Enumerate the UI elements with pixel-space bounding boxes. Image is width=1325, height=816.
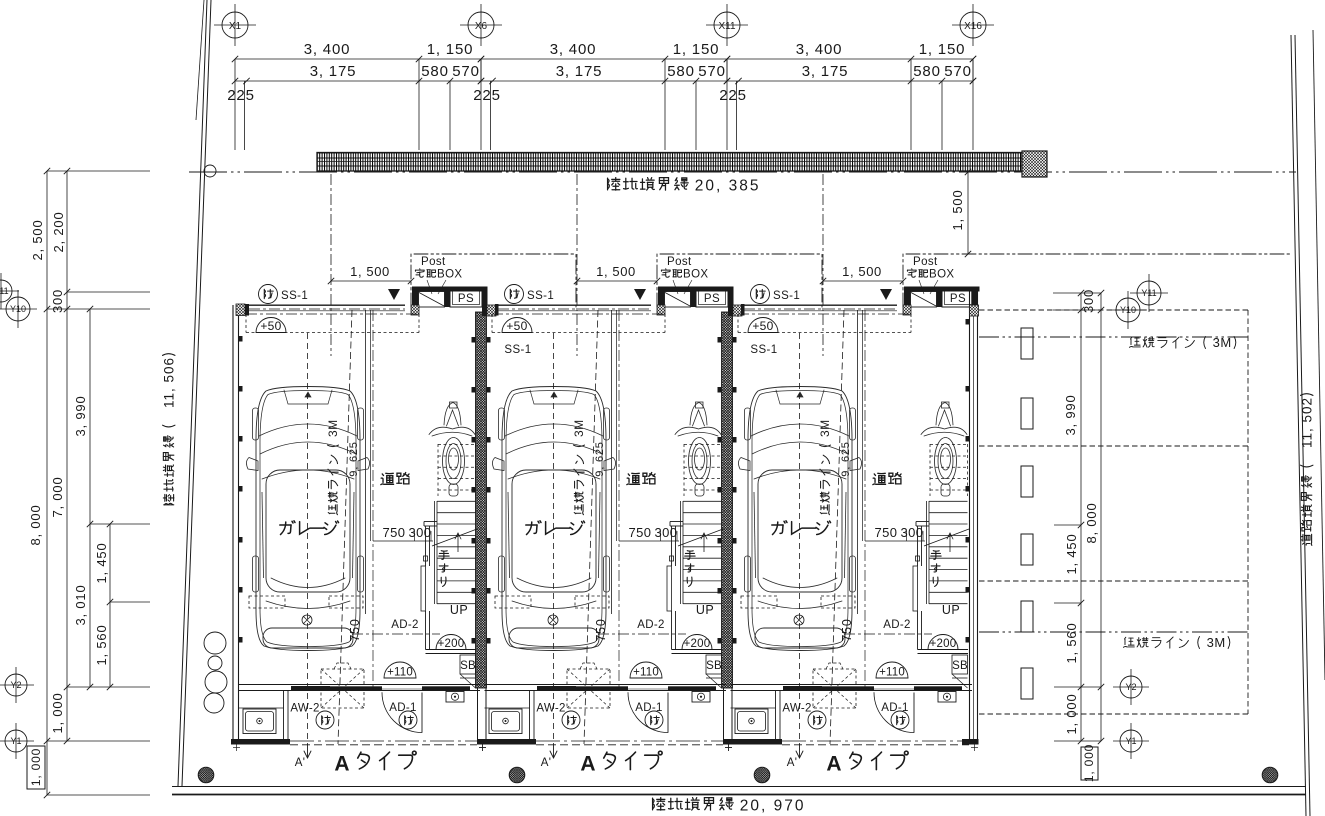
svg-text:1, 000: 1, 000	[29, 748, 43, 786]
svg-text:SS-1: SS-1	[527, 290, 554, 302]
svg-text:11, 506: 11, 506	[162, 357, 177, 408]
svg-text:SB: SB	[952, 660, 968, 672]
svg-text:1, 500: 1, 500	[596, 264, 636, 279]
svg-text:+50: +50	[752, 319, 773, 333]
svg-text:A': A'	[295, 757, 305, 769]
svg-text:3, 990: 3, 990	[73, 396, 88, 437]
svg-text:300: 300	[1081, 289, 1096, 313]
svg-text:+50: +50	[260, 319, 281, 333]
svg-text:A: A	[580, 753, 595, 776]
svg-text:8, 000: 8, 000	[28, 505, 43, 546]
svg-text:X16: X16	[964, 21, 982, 32]
svg-text:Y1: Y1	[1125, 736, 1136, 746]
svg-text:SS-1: SS-1	[750, 344, 777, 356]
svg-text:2, 500: 2, 500	[30, 220, 45, 261]
svg-text:1, 000: 1, 000	[1082, 744, 1096, 782]
svg-text:580: 580	[421, 63, 448, 80]
svg-text:1, 500: 1, 500	[950, 190, 965, 231]
svg-text:AD-2: AD-2	[637, 619, 664, 631]
svg-text:BOX: BOX	[929, 269, 955, 281]
svg-text:3, 400: 3, 400	[796, 41, 843, 58]
svg-text:+110: +110	[879, 667, 905, 679]
svg-text:3, 400: 3, 400	[550, 41, 597, 58]
svg-text:300: 300	[50, 289, 65, 313]
svg-text:1, 560: 1, 560	[1064, 623, 1079, 664]
svg-text:Y11: Y11	[0, 286, 9, 296]
svg-text:1, 000: 1, 000	[50, 693, 65, 734]
svg-text:UP: UP	[450, 603, 468, 617]
svg-text:9, 625: 9, 625	[840, 441, 852, 476]
svg-text:1, 150: 1, 150	[919, 41, 966, 58]
svg-text:A': A'	[787, 757, 797, 769]
svg-text:X6: X6	[475, 21, 488, 32]
svg-text:580: 580	[913, 63, 940, 80]
svg-text:Post: Post	[913, 256, 938, 268]
svg-text:9, 625: 9, 625	[594, 441, 606, 476]
svg-text:1, 150: 1, 150	[673, 41, 720, 58]
svg-text:+200: +200	[438, 638, 465, 650]
svg-text:3, 175: 3, 175	[802, 63, 849, 80]
svg-text:1, 500: 1, 500	[842, 264, 882, 279]
svg-text:+200: +200	[930, 638, 957, 650]
svg-text:9, 625: 9, 625	[348, 441, 360, 476]
svg-text:1, 150: 1, 150	[427, 41, 474, 58]
svg-text:Y11: Y11	[1141, 288, 1156, 298]
svg-text:A': A'	[541, 757, 551, 769]
svg-text:Y2: Y2	[10, 680, 21, 690]
svg-text:AW-2: AW-2	[290, 703, 319, 715]
svg-text:AW-2: AW-2	[536, 703, 565, 715]
svg-text:A: A	[826, 753, 841, 776]
svg-text:570: 570	[698, 63, 725, 80]
svg-text:+50: +50	[506, 319, 527, 333]
svg-text:3M: 3M	[1213, 335, 1232, 350]
svg-text:X1: X1	[229, 21, 242, 32]
svg-text:3, 010: 3, 010	[73, 585, 88, 626]
svg-text:20, 385: 20, 385	[695, 178, 761, 195]
svg-text:SS-1: SS-1	[281, 290, 308, 302]
svg-text:300: 300	[655, 525, 678, 540]
svg-text:AD-2: AD-2	[883, 619, 910, 631]
svg-text:SB: SB	[706, 660, 722, 672]
svg-text:570: 570	[944, 63, 971, 80]
svg-text:3, 175: 3, 175	[310, 63, 357, 80]
svg-text:Y10: Y10	[10, 304, 26, 314]
svg-text:225: 225	[719, 87, 746, 104]
svg-text:Y2: Y2	[1125, 682, 1136, 692]
svg-text:750: 750	[875, 525, 898, 540]
svg-text:AD-2: AD-2	[391, 619, 418, 631]
svg-text:1, 560: 1, 560	[94, 625, 109, 666]
svg-text:750: 750	[383, 525, 406, 540]
svg-text:8, 000: 8, 000	[1084, 503, 1099, 544]
svg-text:750: 750	[594, 618, 608, 641]
svg-text:1, 450: 1, 450	[1064, 534, 1079, 575]
svg-text:750: 750	[629, 525, 652, 540]
svg-text:300: 300	[409, 525, 432, 540]
svg-text:570: 570	[452, 63, 479, 80]
svg-text:2, 200: 2, 200	[51, 212, 66, 253]
svg-text:SS-1: SS-1	[504, 344, 531, 356]
svg-text:1, 500: 1, 500	[350, 264, 390, 279]
svg-text:PS: PS	[950, 293, 966, 305]
svg-text:X11: X11	[718, 21, 735, 32]
svg-text:+110: +110	[633, 667, 659, 679]
svg-text:BOX: BOX	[683, 269, 709, 281]
svg-text:PS: PS	[704, 293, 720, 305]
svg-text:+200: +200	[684, 638, 711, 650]
svg-text:225: 225	[473, 87, 500, 104]
svg-text:UP: UP	[942, 603, 960, 617]
svg-text:+110: +110	[387, 667, 413, 679]
svg-text:11, 502: 11, 502	[1300, 397, 1315, 448]
svg-text:PS: PS	[458, 293, 474, 305]
svg-text:Y1: Y1	[10, 736, 21, 746]
svg-text:SS-1: SS-1	[773, 290, 800, 302]
svg-text:BOX: BOX	[437, 269, 463, 281]
svg-text:AW-2: AW-2	[782, 703, 811, 715]
svg-text:7, 000: 7, 000	[50, 477, 65, 518]
svg-text:1, 450: 1, 450	[94, 543, 109, 584]
svg-text:3, 175: 3, 175	[556, 63, 603, 80]
svg-text:750: 750	[348, 618, 362, 641]
svg-text:225: 225	[227, 87, 254, 104]
svg-text:3, 990: 3, 990	[1063, 395, 1078, 436]
svg-text:UP: UP	[696, 603, 714, 617]
svg-text:Post: Post	[421, 256, 446, 268]
svg-text:3, 400: 3, 400	[304, 41, 351, 58]
svg-text:300: 300	[901, 525, 924, 540]
svg-text:580: 580	[667, 63, 694, 80]
svg-text:Post: Post	[667, 256, 692, 268]
svg-text:SB: SB	[460, 660, 476, 672]
svg-text:750: 750	[840, 618, 854, 641]
svg-text:3M: 3M	[1207, 635, 1226, 650]
svg-text:20, 970: 20, 970	[740, 798, 806, 815]
svg-text:A: A	[334, 753, 349, 776]
